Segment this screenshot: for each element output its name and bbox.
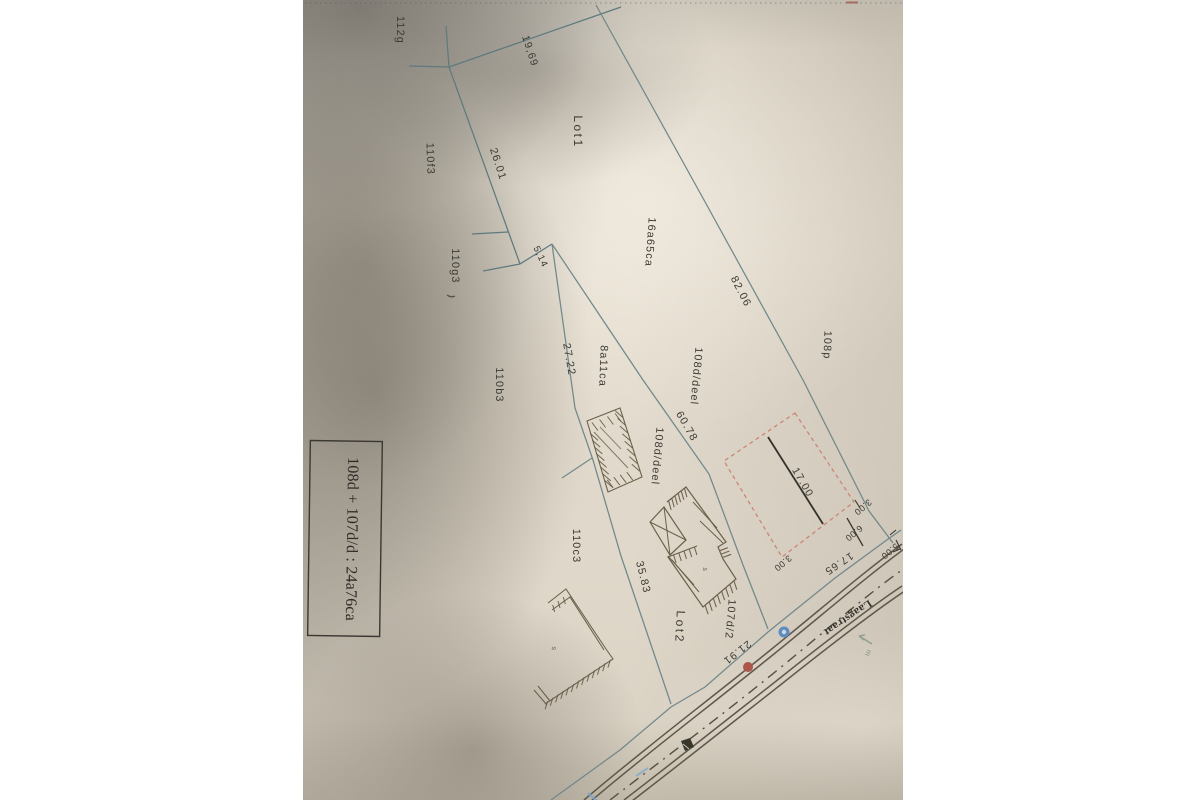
svg-text:m: m [863, 648, 874, 657]
svg-text:108d + 107d/d : 24a76ca: 108d + 107d/d : 24a76ca [342, 457, 361, 621]
svg-text:35.83: 35.83 [633, 560, 653, 595]
svg-text:110b3: 110b3 [493, 367, 505, 402]
svg-text:110g3: 110g3 [449, 248, 461, 283]
svg-text:110c3: 110c3 [570, 529, 582, 564]
svg-text:110f3: 110f3 [423, 143, 436, 176]
svg-text:112g: 112g [394, 16, 406, 44]
svg-text:5,14: 5,14 [531, 244, 550, 269]
svg-text:s: s [550, 646, 558, 651]
svg-text:Lot1: Lot1 [571, 115, 585, 148]
svg-text:16a65ca: 16a65ca [642, 217, 657, 268]
svg-text:27.22: 27.22 [560, 342, 578, 377]
svg-text:26.01: 26.01 [487, 147, 509, 182]
svg-text:8a11ca: 8a11ca [596, 345, 609, 387]
svg-text:6.00: 6.00 [843, 523, 864, 543]
svg-text:108p: 108p [820, 330, 833, 359]
svg-text:17.00: 17.00 [789, 466, 816, 500]
svg-text:17.65: 17.65 [822, 549, 855, 577]
svg-text:19,69: 19,69 [519, 34, 540, 68]
svg-text:s: s [701, 567, 708, 572]
svg-text:108d/deel: 108d/deel [687, 347, 704, 406]
svg-text:107d/2: 107d/2 [722, 599, 737, 640]
svg-text:60.78: 60.78 [673, 409, 700, 444]
svg-text:Lot2: Lot2 [672, 610, 688, 644]
svg-text:82.06: 82.06 [728, 274, 754, 309]
svg-text:108d/deel: 108d/deel [648, 427, 665, 486]
